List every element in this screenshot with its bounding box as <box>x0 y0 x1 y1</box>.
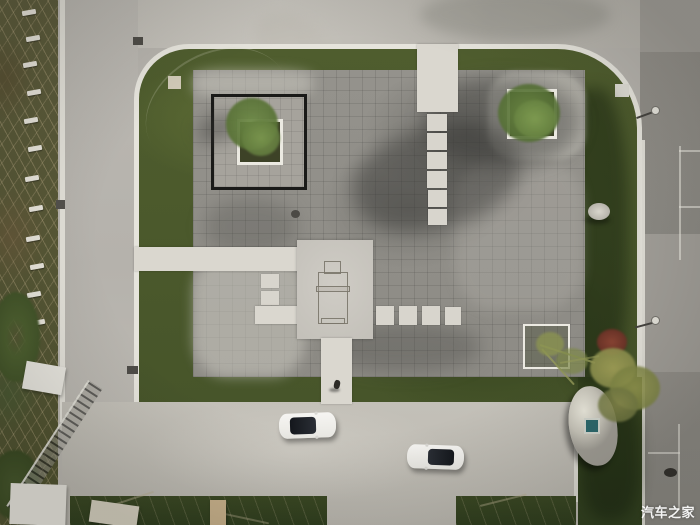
parking-line <box>679 150 700 152</box>
parking-line <box>678 424 680 510</box>
bottom-grass-strip-right <box>456 496 576 525</box>
car-mirror <box>425 444 428 447</box>
parking-line <box>648 452 680 454</box>
stepping-stone <box>427 152 447 169</box>
car-mirror <box>425 467 428 470</box>
car-glass <box>428 449 455 466</box>
car-mirror <box>315 412 318 415</box>
white-car-upper <box>279 412 337 439</box>
monument-outline-head <box>324 261 341 274</box>
watermark-logo: 汽车之家 <box>641 502 695 521</box>
paver-square <box>615 84 629 97</box>
curb-marker <box>56 200 65 209</box>
stepping-slab <box>255 306 299 324</box>
stepping-stone <box>427 133 447 150</box>
debris <box>664 468 677 477</box>
monument-outline-band <box>316 286 350 292</box>
post <box>210 500 226 525</box>
parking-line <box>679 146 681 260</box>
curb-marker <box>127 366 138 374</box>
rock <box>588 203 610 220</box>
tree <box>242 120 280 156</box>
left-entry-walkway <box>134 247 298 271</box>
info-plaque <box>584 418 600 434</box>
white-car-lower <box>407 444 465 470</box>
curb-marker <box>133 37 143 45</box>
stepping-stone <box>399 306 417 325</box>
aerial-photo: 汽车之家 <box>0 0 700 525</box>
monument-outline <box>318 272 348 324</box>
car-mirror <box>315 436 318 439</box>
street-lamp <box>651 106 660 115</box>
stepping-stone <box>261 274 279 288</box>
top-entry-walkway <box>417 44 458 112</box>
stepping-stone <box>428 190 447 207</box>
paver-square <box>168 76 181 89</box>
stepping-stone <box>428 209 447 225</box>
tree <box>514 100 556 138</box>
stepping-stone <box>427 171 447 188</box>
car-glass <box>290 417 317 435</box>
stepping-stone <box>445 307 461 325</box>
stepping-stone <box>422 306 440 325</box>
monument-outline-base <box>321 318 345 324</box>
stepping-stone <box>376 306 394 325</box>
parking-line <box>679 206 700 208</box>
light-paving-band <box>193 70 313 97</box>
stepping-stone <box>261 291 279 305</box>
bottom-exit-walkway <box>321 338 352 404</box>
street-lamp <box>651 316 660 325</box>
wall-segment <box>9 483 66 525</box>
central-monument-pad <box>297 240 373 339</box>
autumn-tree <box>598 388 638 422</box>
stepping-stone <box>427 114 447 131</box>
drain <box>291 210 300 218</box>
